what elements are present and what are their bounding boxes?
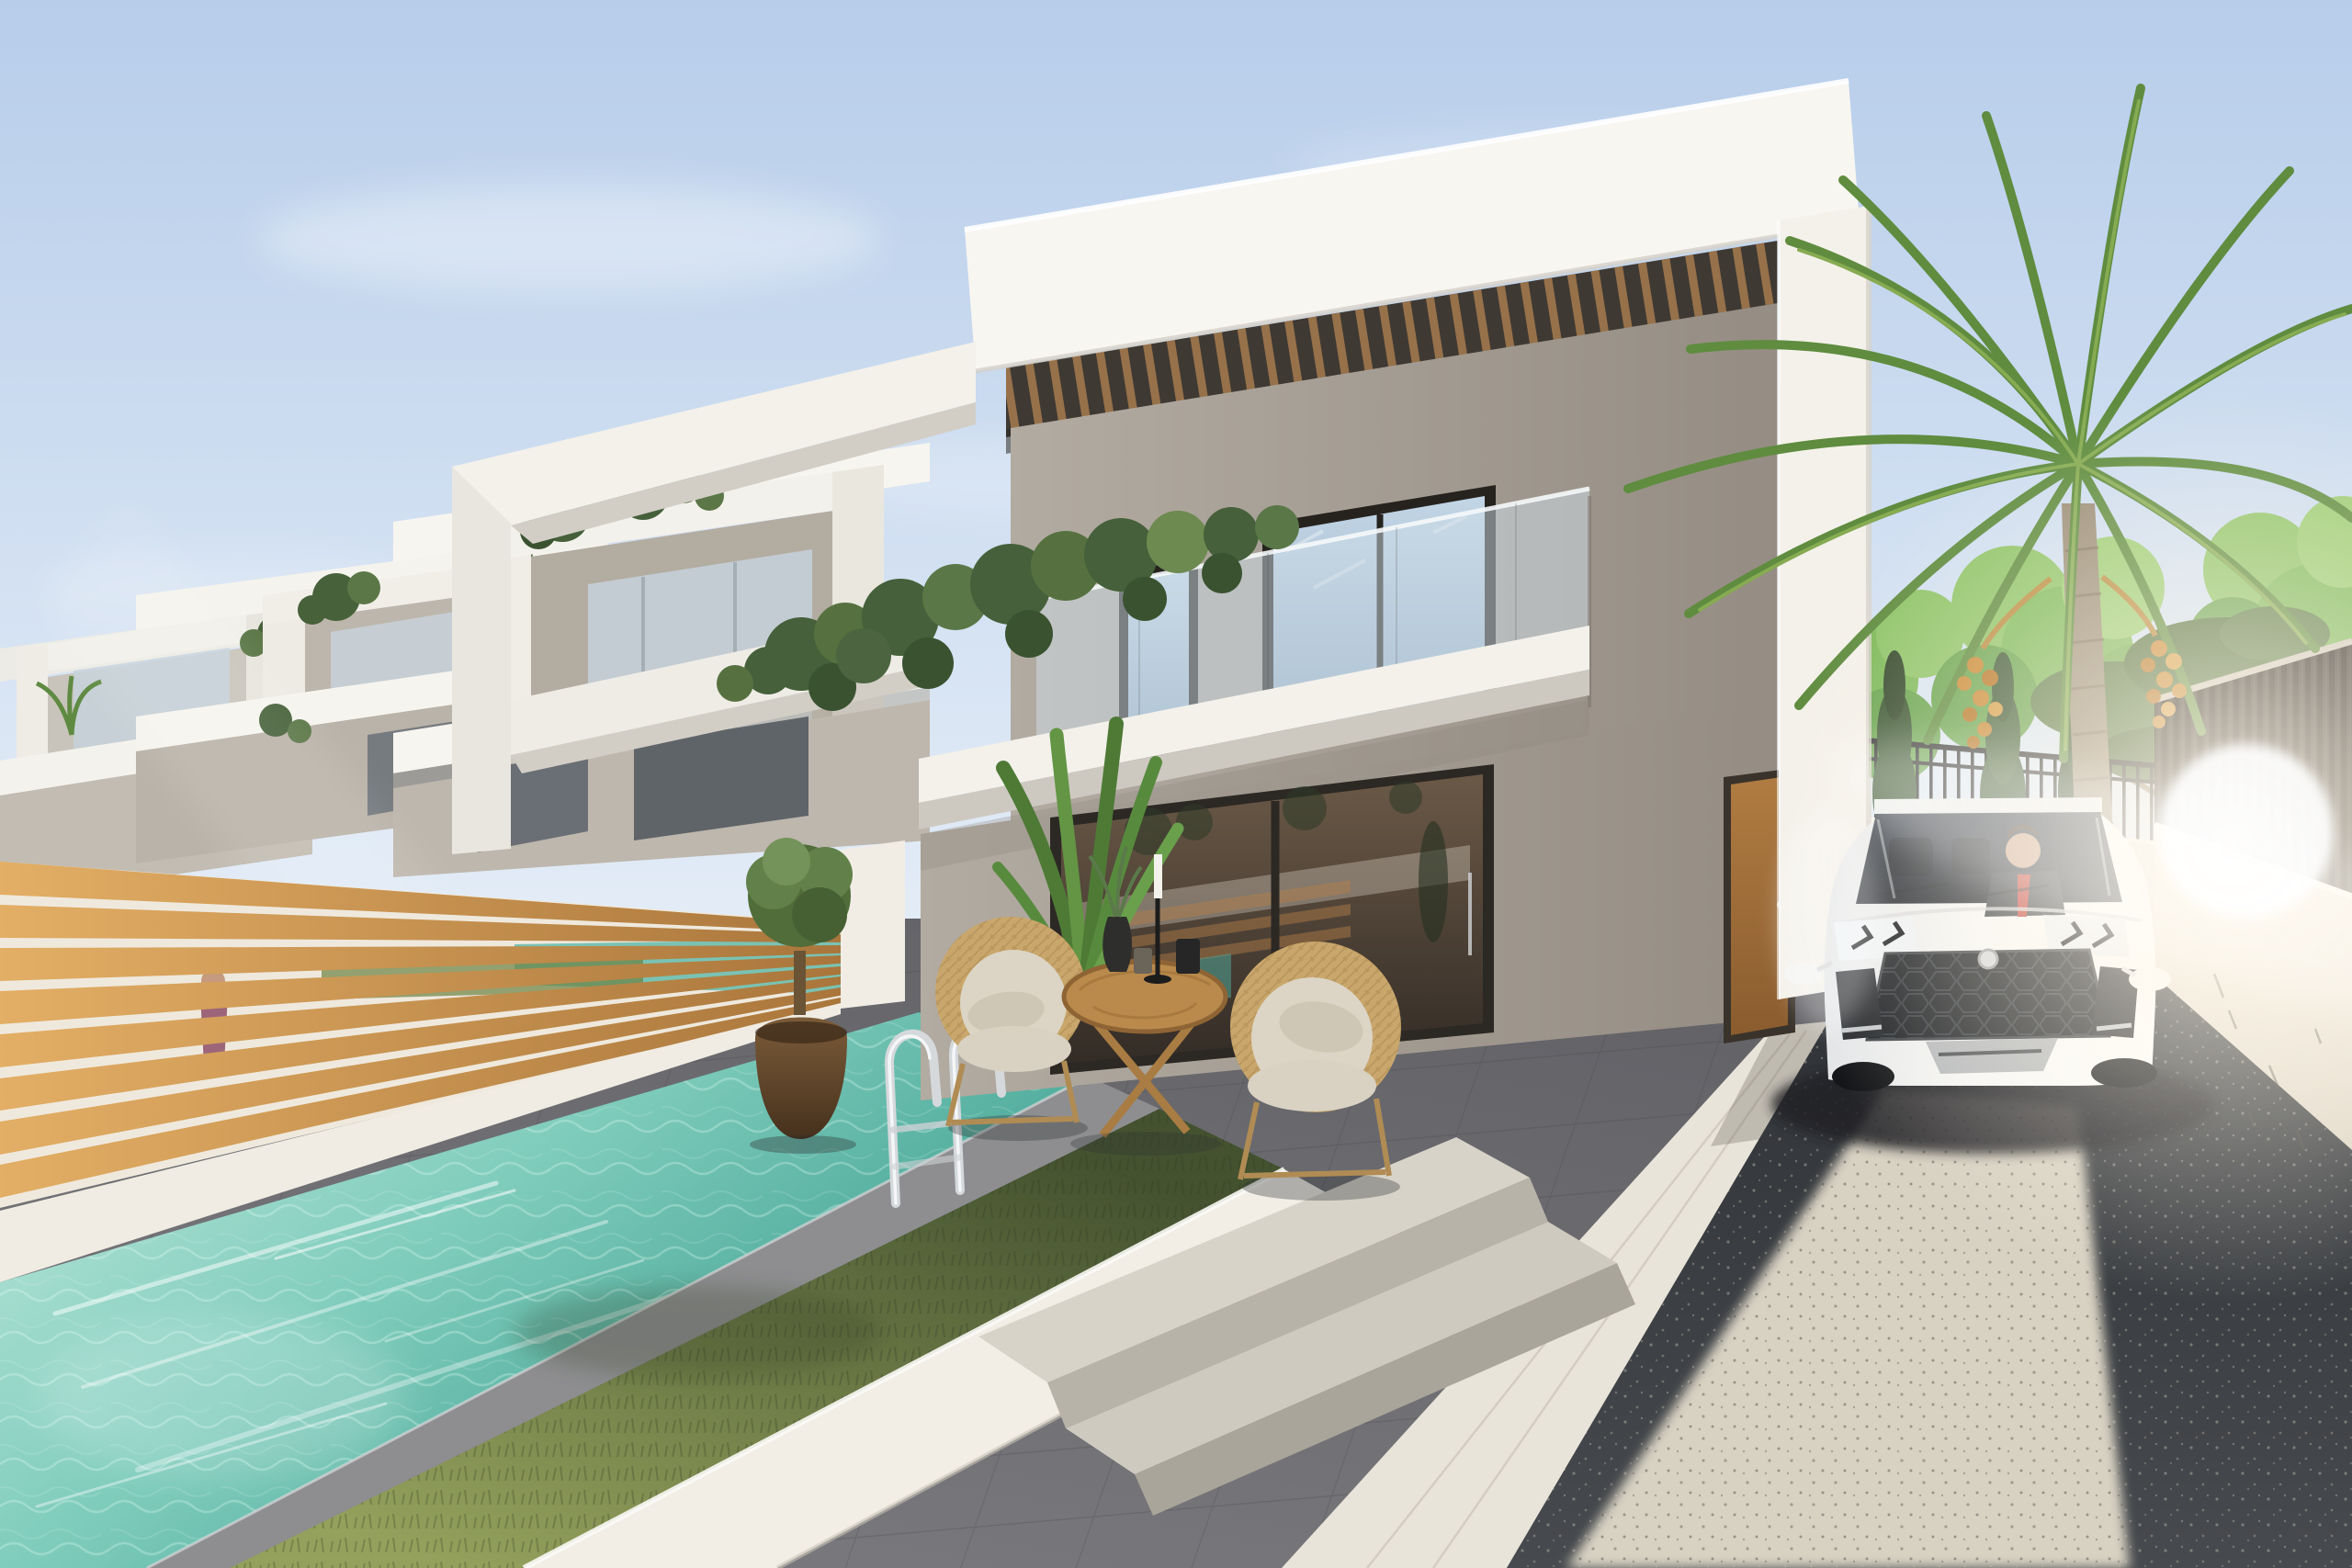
jar-black (1176, 939, 1200, 974)
pool-sky-reflection (37, 1314, 404, 1479)
villa-render (0, 0, 2352, 1568)
vase (1102, 917, 1132, 972)
candle (1154, 854, 1162, 898)
door-reflection-cypress (1419, 821, 1448, 942)
render-stage (0, 0, 2352, 1568)
jar-grey (1134, 948, 1152, 974)
